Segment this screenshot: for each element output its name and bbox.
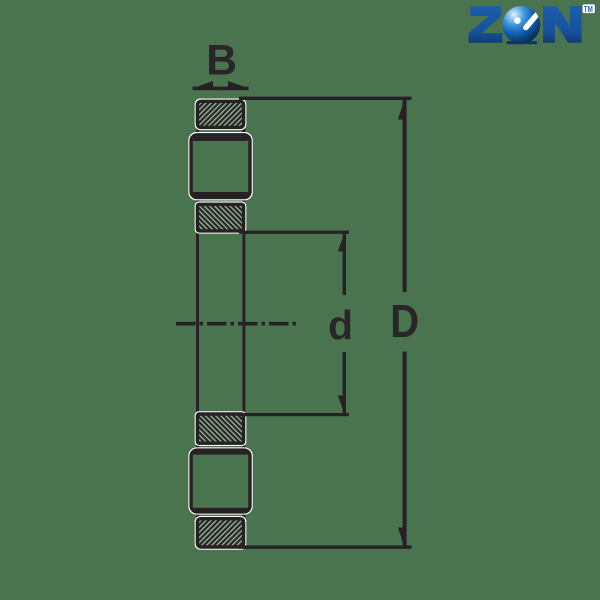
svg-text:B: B — [206, 37, 237, 84]
svg-text:TM: TM — [584, 6, 593, 14]
svg-text:D: D — [390, 296, 419, 347]
svg-text:d: d — [328, 302, 353, 348]
